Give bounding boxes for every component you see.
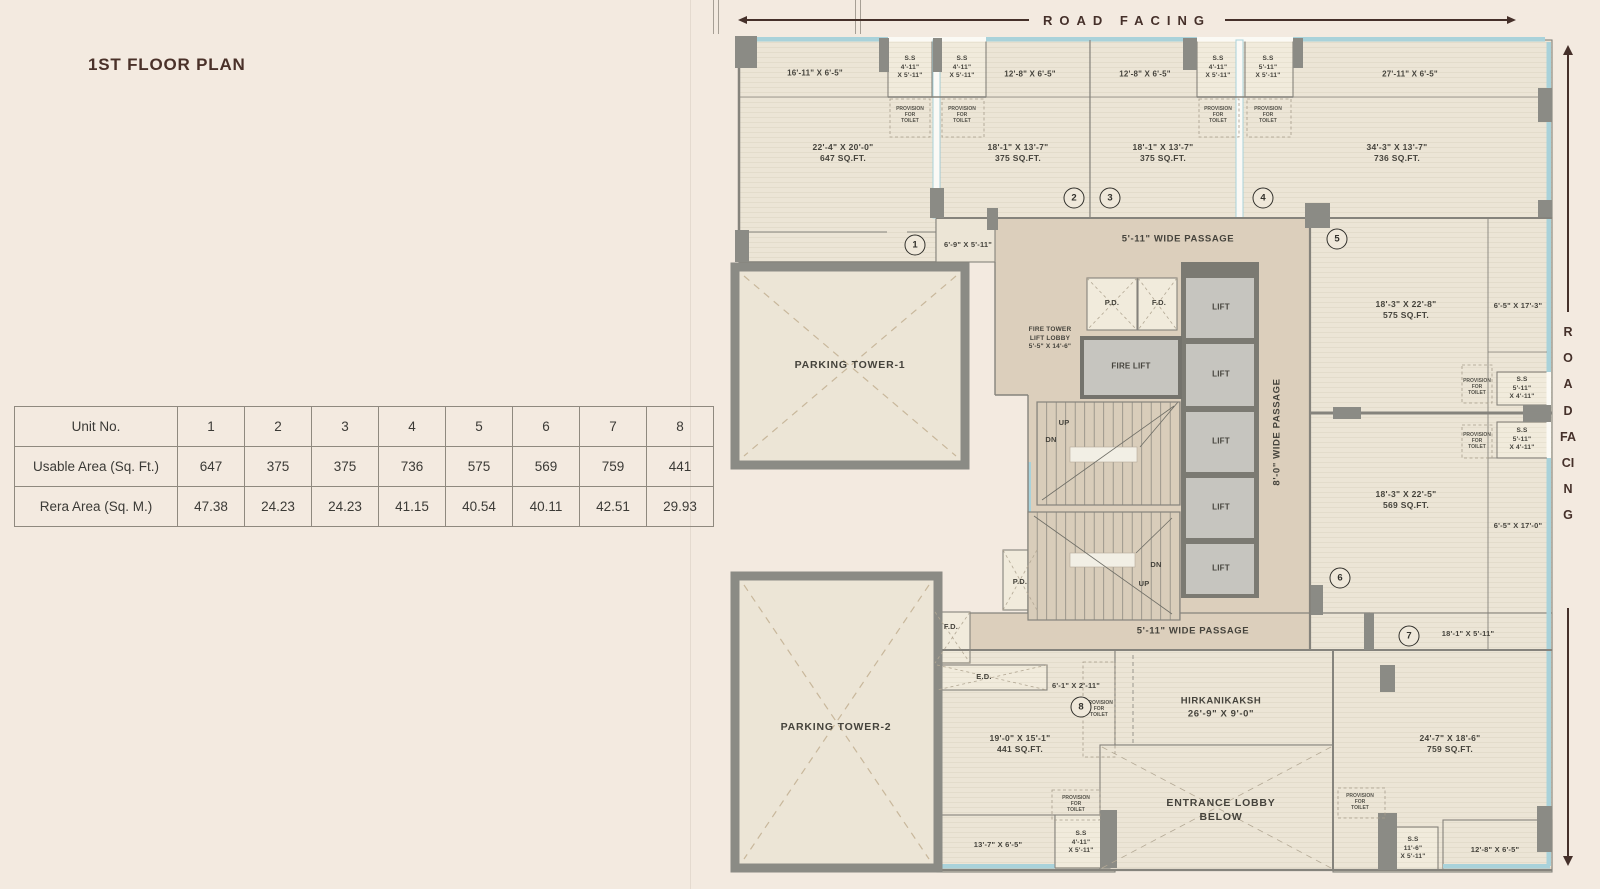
- unit-circle-1: 1: [905, 235, 926, 256]
- arrow-right-icon: [1507, 16, 1516, 24]
- label-fd: F.D.: [944, 622, 958, 632]
- label-passage-bottom: 5'-11" WIDE PASSAGE: [1137, 626, 1250, 639]
- table-cell: 7: [580, 407, 647, 447]
- arrow-line: [1567, 608, 1569, 858]
- label-u1-balcony: 16'-11" X 6'-5": [787, 69, 843, 80]
- dimension-tick: [713, 0, 719, 34]
- table-cell: 40.11: [513, 487, 580, 527]
- table-cell: 759: [580, 447, 647, 487]
- table-cell: 2: [245, 407, 312, 447]
- label-u3-balcony: 12'-8" X 6'-5": [1119, 70, 1171, 81]
- parking-towers: [735, 267, 965, 868]
- road-facing-right-label: ROAD FACING: [1559, 319, 1577, 529]
- label-ss: S.S 5'-11" X 4'-11": [1509, 427, 1534, 453]
- table-cell: 40.54: [446, 487, 513, 527]
- table-cell: 1: [178, 407, 245, 447]
- label-lift: LIFT: [1212, 564, 1230, 575]
- label-up: UP: [1059, 418, 1070, 428]
- label-u3-room: 18'-1" X 13'-7" 375 SQ.FT.: [1132, 142, 1193, 164]
- table-cell: 41.15: [379, 487, 446, 527]
- table-cell: 569: [513, 447, 580, 487]
- unit-circle-7: 7: [1399, 626, 1420, 647]
- label-ss: S.S 5'-11" X 5'-11": [1255, 55, 1280, 81]
- unit-circle-2: 2: [1064, 188, 1085, 209]
- label-u7-room: 24'-7" X 18'-6" 759 SQ.FT.: [1419, 733, 1480, 755]
- floor-plan: ROAD FACING ROAD FACING 16'-11" X 6'-5" …: [700, 0, 1600, 889]
- label-provision-toilet: PROVISION FOR TOILET: [1204, 106, 1232, 124]
- label-u1-passage: 6'-9" X 5'-11": [944, 240, 992, 250]
- label-ss: S.S 4'-11" X 5'-11": [1205, 55, 1230, 81]
- label-u5-room: 18'-3" X 22'-8" 575 SQ.FT.: [1375, 299, 1436, 321]
- road-facing-top: ROAD FACING: [738, 10, 1516, 30]
- label-pd: P.D.: [1105, 298, 1119, 308]
- label-u5-balcony: 6'-5" X 17'-3": [1494, 301, 1543, 311]
- label-provision-toilet: PROVISION FOR TOILET: [948, 106, 976, 124]
- page: 1ST FLOOR PLAN Unit No. 1 2 3 4 5 6 7 8 …: [0, 0, 1600, 889]
- label-lift: LIFT: [1212, 303, 1230, 314]
- table-cell: Usable Area (Sq. Ft.): [15, 447, 178, 487]
- label-fire-lift: FIRE LIFT: [1111, 362, 1150, 373]
- table-cell: Unit No.: [15, 407, 178, 447]
- label-provision-toilet: PROVISION FOR TOILET: [1346, 793, 1374, 811]
- label-fire-lobby: FIRE TOWER LIFT LOBBY 5'-5" X 14'-6": [1029, 326, 1072, 352]
- label-lift: LIFT: [1212, 503, 1230, 514]
- table-cell: 24.23: [312, 487, 379, 527]
- table-cell: 6: [513, 407, 580, 447]
- label-fd: F.D.: [1152, 298, 1166, 308]
- label-dn: DN: [1150, 560, 1161, 570]
- label-lift: LIFT: [1212, 437, 1230, 448]
- label-u8-entry: 6'-1" X 2'-11": [1052, 681, 1100, 691]
- table-cell: 736: [379, 447, 446, 487]
- label-u2-room: 18'-1" X 13'-7" 375 SQ.FT.: [987, 142, 1048, 164]
- label-u1-room: 22'-4" X 20'-0" 647 SQ.FT.: [812, 142, 873, 164]
- label-passage-vertical: 8'-0" WIDE PASSAGE: [1272, 378, 1285, 485]
- page-title: 1ST FLOOR PLAN: [88, 55, 246, 75]
- label-ss: S.S 4'-11" X 5'-11": [897, 55, 922, 81]
- arrow-line: [747, 19, 1029, 21]
- label-u7-balcony: 12'-8" X 6'-5": [1471, 845, 1520, 855]
- label-u4-balcony: 27'-11" X 6'-5": [1382, 70, 1438, 81]
- table-cell: 375: [245, 447, 312, 487]
- label-u8-balcony: 13'-7" X 6'-5": [974, 840, 1023, 850]
- label-provision-toilet: PROVISION FOR TOILET: [896, 106, 924, 124]
- table-cell: 47.38: [178, 487, 245, 527]
- road-facing-top-label: ROAD FACING: [1043, 13, 1211, 28]
- table-cell: 42.51: [580, 487, 647, 527]
- table-cell: 5: [446, 407, 513, 447]
- table-row: Rera Area (Sq. M.) 47.38 24.23 24.23 41.…: [15, 487, 714, 527]
- label-provision-toilet: PROVISION FOR TOILET: [1062, 795, 1090, 813]
- label-ss: S.S 5'-11" X 4'-11": [1509, 376, 1534, 402]
- label-u7-entry: 18'-1" X 5'-11": [1442, 629, 1494, 639]
- table-cell: 375: [312, 447, 379, 487]
- label-entrance-lobby: ENTRANCE LOBBY BELOW: [1166, 797, 1275, 825]
- label-provision-toilet: PROVISION FOR TOILET: [1463, 432, 1491, 450]
- table-cell: Rera Area (Sq. M.): [15, 487, 178, 527]
- table-row: Unit No. 1 2 3 4 5 6 7 8: [15, 407, 714, 447]
- label-lift: LIFT: [1212, 370, 1230, 381]
- area-table: Unit No. 1 2 3 4 5 6 7 8 Usable Area (Sq…: [14, 406, 714, 527]
- label-u2-balcony: 12'-8" X 6'-5": [1004, 70, 1056, 81]
- unit-circle-3: 3: [1100, 188, 1121, 209]
- label-pd: P.D.: [1013, 577, 1027, 587]
- table-cell: 24.23: [245, 487, 312, 527]
- label-parking-tower-1: PARKING TOWER-1: [795, 359, 906, 373]
- label-hirkanikaksh: HIRKANIKAKSH 26'-9" X 9'-0": [1181, 695, 1262, 720]
- label-ss: S.S 4'-11" X 5'-11": [949, 55, 974, 81]
- table-cell: 647: [178, 447, 245, 487]
- label-up: UP: [1139, 579, 1150, 589]
- table-cell: 4: [379, 407, 446, 447]
- label-u4-room: 34'-3" X 13'-7" 736 SQ.FT.: [1366, 142, 1427, 164]
- label-u6-balcony: 6'-5" X 17'-0": [1494, 521, 1543, 531]
- label-provision-toilet: PROVISION FOR TOILET: [1254, 106, 1282, 124]
- table-cell: 3: [312, 407, 379, 447]
- arrow-down-icon: [1563, 856, 1573, 866]
- label-u8-room: 19'-0" X 15'-1" 441 SQ.FT.: [989, 733, 1050, 755]
- arrow-line: [1567, 54, 1569, 312]
- label-ss: S.S 11'-6" X 5'-11": [1400, 836, 1425, 862]
- label-u6-room: 18'-3" X 22'-5" 569 SQ.FT.: [1375, 489, 1436, 511]
- unit-circle-6: 6: [1330, 568, 1351, 589]
- label-ed: E.D.: [976, 672, 991, 682]
- table-row: Usable Area (Sq. Ft.) 647 375 375 736 57…: [15, 447, 714, 487]
- label-parking-tower-2: PARKING TOWER-2: [781, 721, 892, 735]
- label-ss: S.S 4'-11" X 5'-11": [1068, 830, 1093, 856]
- arrow-left-icon: [738, 16, 747, 24]
- arrow-line: [1225, 19, 1507, 21]
- unit-circle-8: 8: [1071, 697, 1092, 718]
- label-dn: DN: [1045, 435, 1056, 445]
- table-cell: 575: [446, 447, 513, 487]
- label-provision-toilet: PROVISION FOR TOILET: [1463, 378, 1491, 396]
- unit-circle-4: 4: [1253, 188, 1274, 209]
- unit-circle-5: 5: [1327, 229, 1348, 250]
- label-passage-top: 5'-11" WIDE PASSAGE: [1122, 234, 1235, 247]
